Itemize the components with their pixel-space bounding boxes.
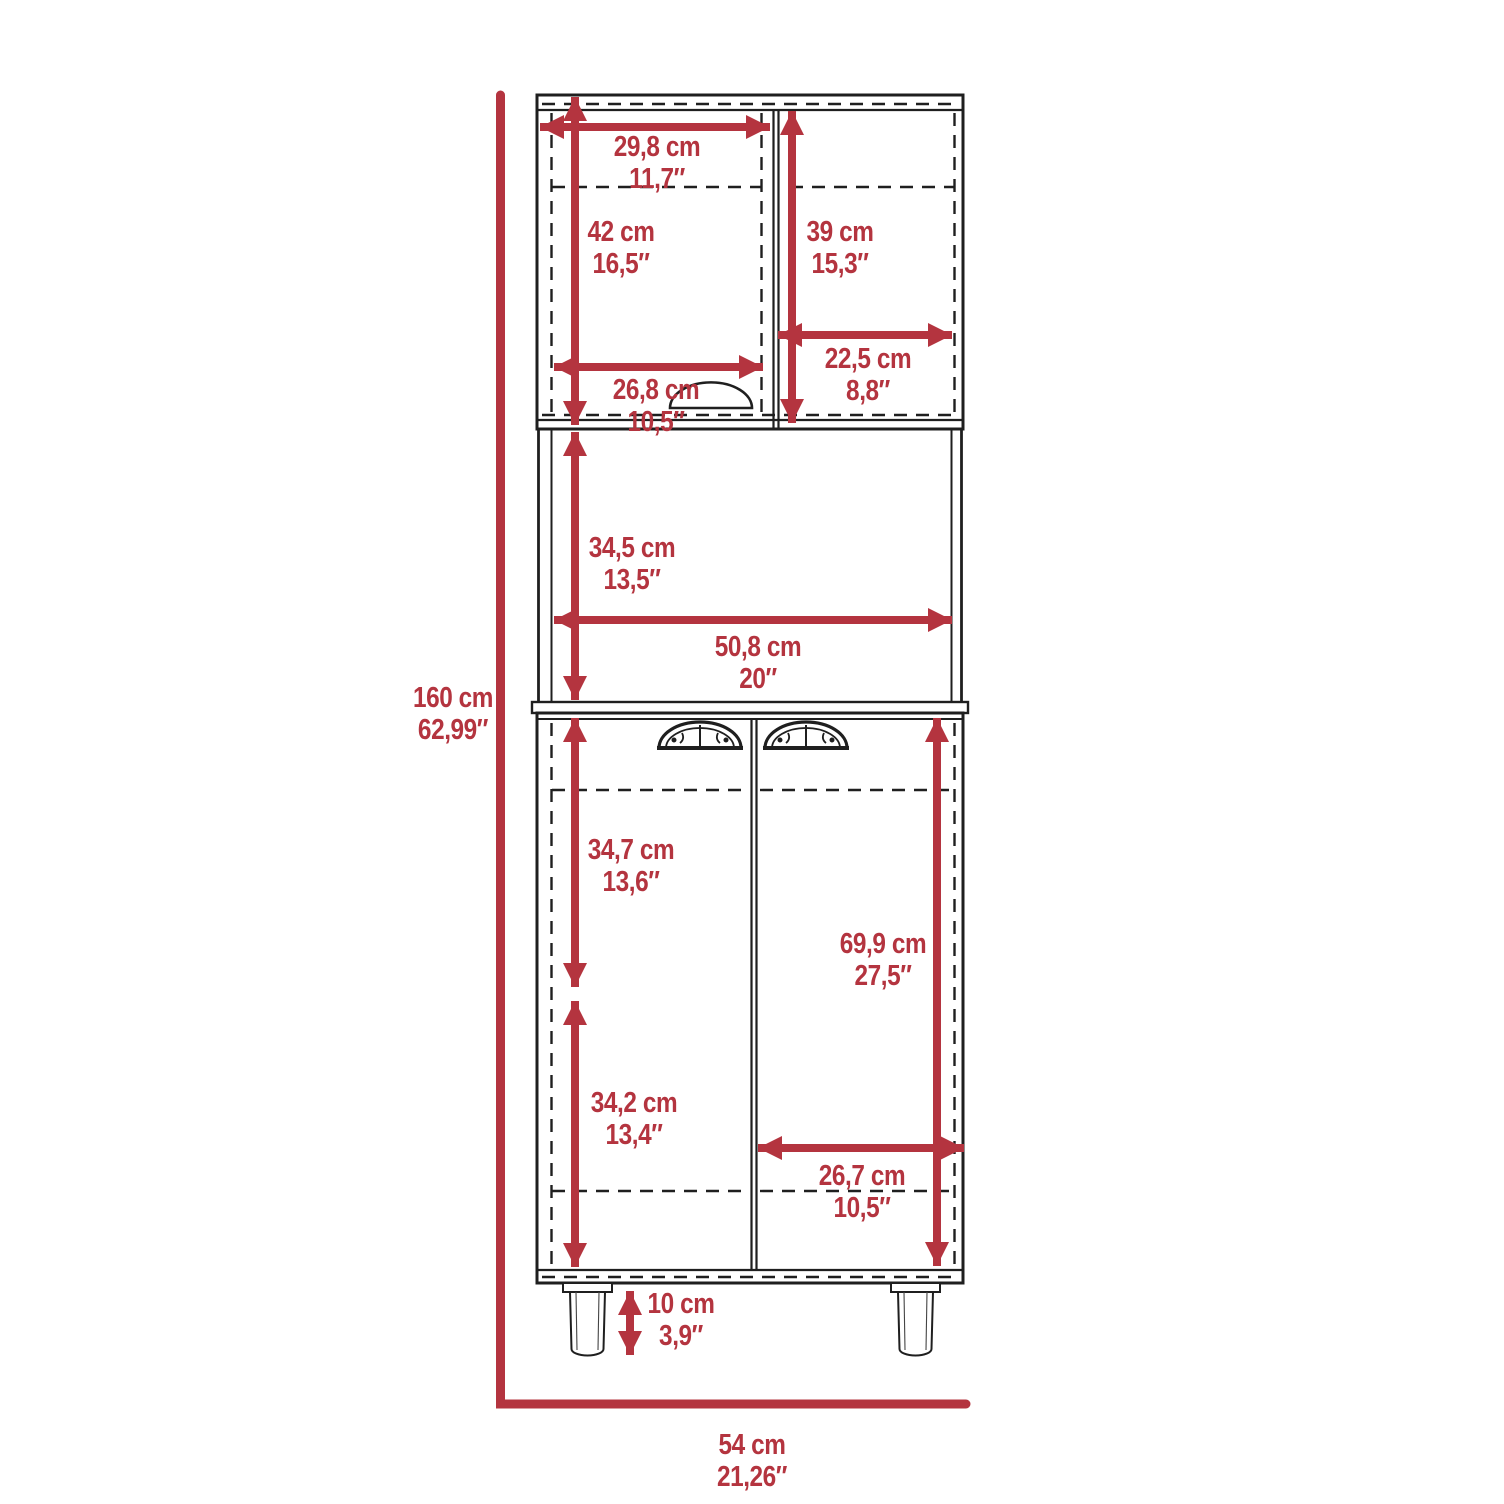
dim-label-upper-shelf-width: 26,8 cm 10,5″ — [613, 374, 699, 438]
dim-label-lower-lower-height: 34,2 cm 13,4″ — [591, 1087, 677, 1151]
dim-label-lower-right-width: 26,7 cm 10,5″ — [819, 1160, 905, 1224]
dim-label-total-width: 54 cm 21,26″ — [717, 1429, 787, 1493]
dim-label-upper-left-width: 29,8 cm 11,7″ — [614, 131, 700, 195]
cabinet-line-art — [0, 0, 1504, 1504]
cabinet-legs — [563, 1283, 940, 1356]
dimension-diagram: 29,8 cm 11,7″ 42 cm 16,5″ 39 cm 15,3″ 22… — [0, 0, 1504, 1504]
dim-label-upper-left-height: 42 cm 16,5″ — [588, 216, 655, 280]
dim-label-lower-upper-height: 34,7 cm 13,6″ — [588, 834, 674, 898]
lower-left-door-handle-icon — [657, 722, 743, 748]
dim-label-upper-right-height: 39 cm 15,3″ — [807, 216, 874, 280]
dim-label-middle-width: 50,8 cm 20″ — [715, 631, 801, 695]
dim-label-leg-height: 10 cm 3,9″ — [648, 1288, 715, 1352]
dim-label-middle-height: 34,5 cm 13,5″ — [589, 532, 675, 596]
lower-right-door-handle-icon — [763, 722, 849, 748]
dim-label-lower-door-height: 69,9 cm 27,5″ — [840, 928, 926, 992]
dim-label-total-height: 160 cm 62,99″ — [413, 682, 493, 746]
right-leg — [891, 1283, 940, 1356]
left-leg — [563, 1283, 612, 1356]
dim-label-upper-right-width: 22,5 cm 8,8″ — [825, 343, 911, 407]
